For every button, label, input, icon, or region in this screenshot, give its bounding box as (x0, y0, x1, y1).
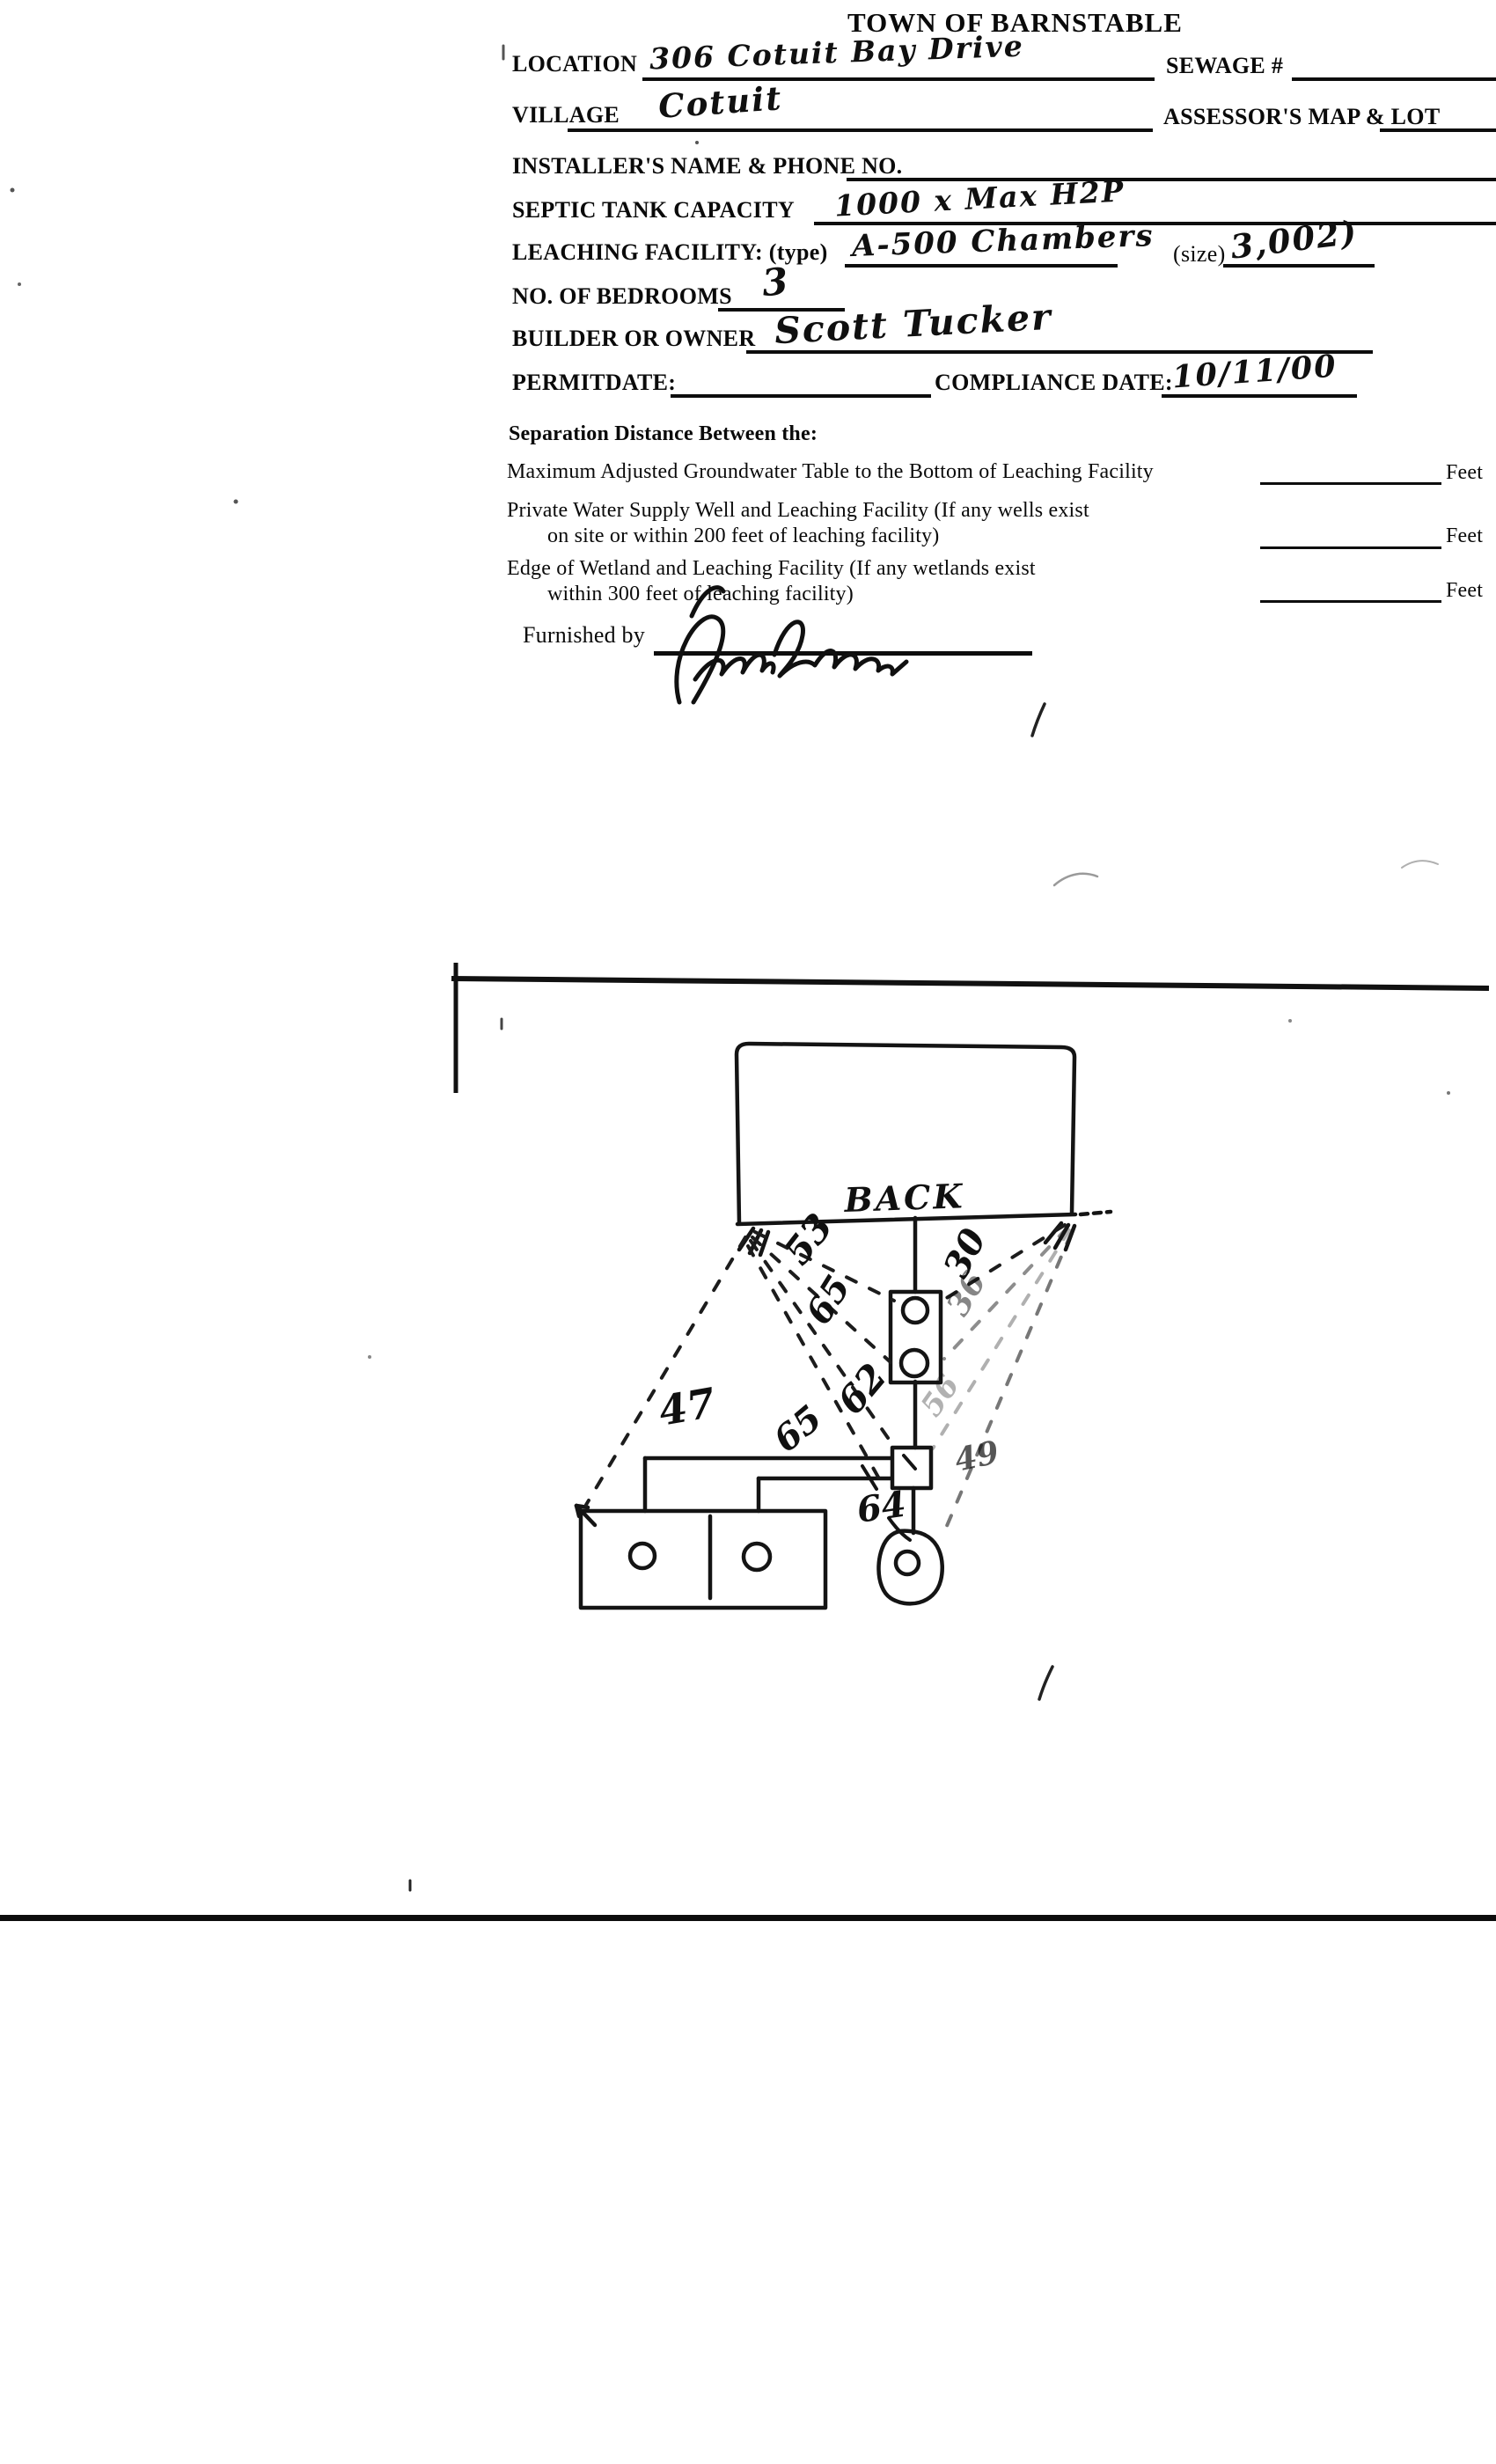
septic-tank (891, 1292, 941, 1382)
scan-artifacts (11, 46, 1451, 1890)
distribution-box (892, 1448, 931, 1488)
measurement-49: 49 (951, 1434, 1002, 1479)
stray-marks (1032, 704, 1438, 1699)
well (878, 1531, 942, 1604)
measurement-labels: 53 65 30 36 47 62 65 56 49 64 (656, 1206, 1002, 1531)
house-back-label: BACK (843, 1176, 965, 1220)
measurement-36: 36 (939, 1265, 993, 1322)
scanned-permit-page: TOWN OF BARNSTABLE LOCATION 306 Cotuit B… (0, 0, 1496, 2464)
measurement-47: 47 (656, 1379, 719, 1435)
dashed-line-47 (586, 1237, 745, 1505)
page-divider (0, 1915, 1496, 1921)
measurement-56: 56 (914, 1368, 967, 1423)
leaching-facility (576, 1506, 825, 1608)
site-sketch-svg: BACK (0, 0, 1496, 2464)
measurement-64: 64 (854, 1484, 909, 1531)
measurement-65-lower: 65 (766, 1397, 830, 1461)
measurement-53: 53 (775, 1206, 841, 1272)
furnished-by-signature (677, 588, 906, 702)
sketch-frame (451, 963, 1489, 1093)
